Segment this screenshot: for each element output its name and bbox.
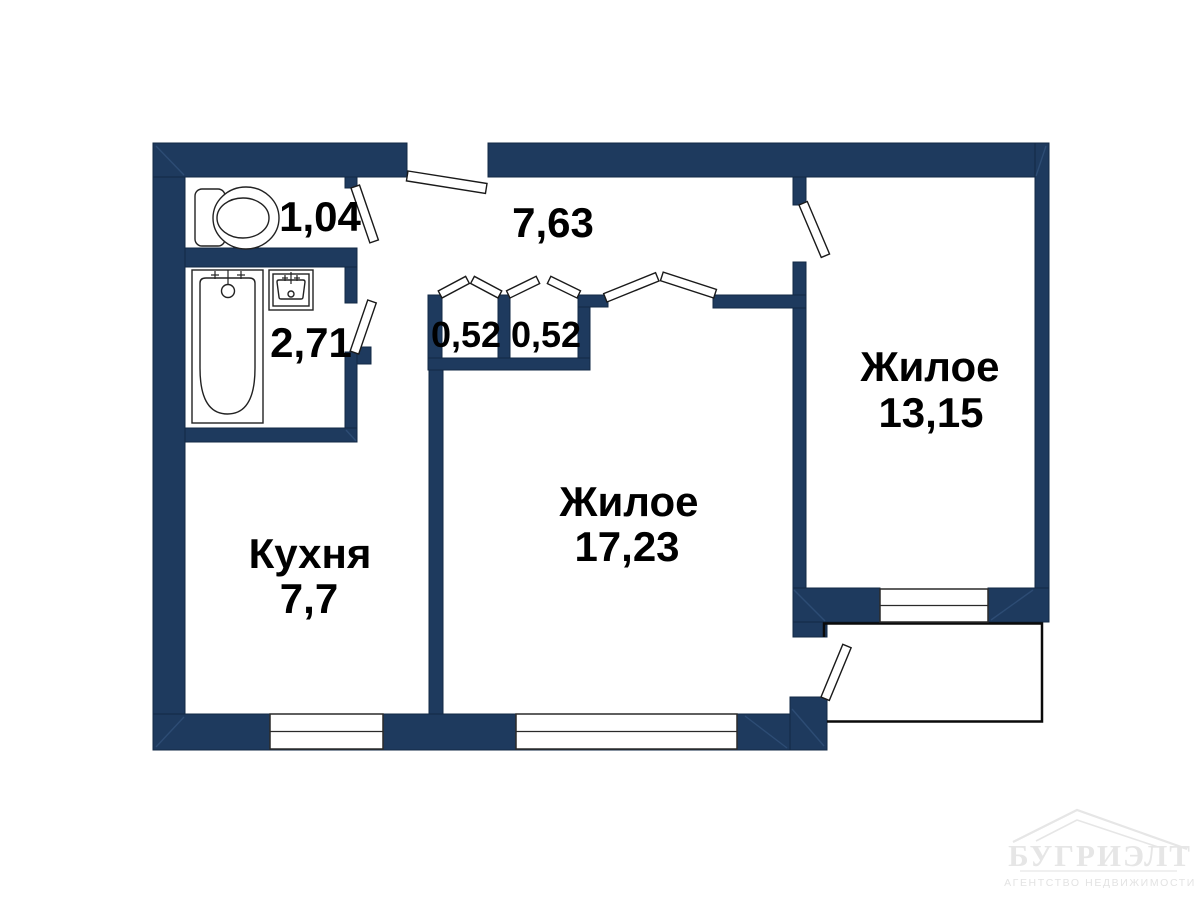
closet-left-door-leaf-b bbox=[471, 276, 502, 298]
toilet-area-label: 1,04 bbox=[279, 193, 361, 240]
windows bbox=[270, 589, 988, 749]
wall-bath-bottom bbox=[185, 428, 357, 442]
closet-right-area-label: 0,52 bbox=[511, 314, 581, 355]
wall-bedroom-left bbox=[793, 262, 806, 588]
living-name-label: Жилое bbox=[559, 478, 699, 525]
kitchen-name-label: Кухня bbox=[249, 530, 372, 577]
closet-left-area-label: 0,52 bbox=[431, 314, 501, 355]
agency-tagline-text: АГЕНТСТВО НЕДВИЖИМОСТИ bbox=[1004, 877, 1196, 889]
agency-brand-text: БУГРИЭЛТ bbox=[1008, 838, 1192, 873]
toilet-icon bbox=[195, 187, 279, 249]
wall-top-right bbox=[488, 143, 1049, 177]
bathtub-icon bbox=[192, 270, 263, 423]
bathroom-door-leaf bbox=[350, 300, 376, 354]
wall-toilet-bath-divider bbox=[185, 248, 357, 267]
living-area-label: 17,23 bbox=[574, 523, 679, 570]
agency-watermark: БУГРИЭЛТ АГЕНТСТВО НЕДВИЖИМОСТИ bbox=[1004, 810, 1196, 889]
hallway-area-label: 7,63 bbox=[512, 199, 594, 246]
living-door-leaf-a bbox=[604, 273, 659, 302]
doors bbox=[350, 171, 851, 700]
wall-left bbox=[153, 143, 185, 750]
living-door-leaf-b bbox=[660, 272, 716, 298]
sink-icon bbox=[269, 270, 313, 310]
wall-bedroom-left-stub bbox=[793, 177, 806, 205]
room-labels: 7,63 1,04 2,71 0,52 0,52 Кухня 7,7 Жилое… bbox=[249, 193, 1000, 622]
wall-top-left bbox=[153, 143, 407, 177]
closet-right-door-leaf-a bbox=[506, 276, 539, 298]
wall-bedroom-bottom-left bbox=[793, 588, 880, 622]
balcony-door-leaf bbox=[821, 644, 851, 700]
wall-closet-right-stub bbox=[578, 295, 608, 307]
wall-right bbox=[1035, 143, 1049, 622]
bathroom-area-label: 2,71 bbox=[270, 319, 352, 366]
bedroom-area-label: 13,15 bbox=[878, 389, 983, 436]
wall-bedroom-bottom-ext bbox=[793, 622, 827, 637]
bedroom-name-label: Жилое bbox=[860, 343, 1000, 390]
floor-plan: 7,63 1,04 2,71 0,52 0,52 Кухня 7,7 Жилое… bbox=[0, 0, 1200, 900]
closet-left-door-leaf-a bbox=[438, 276, 469, 298]
wall-closet-bottom bbox=[428, 358, 590, 370]
wall-bedroom-bottom-right bbox=[988, 588, 1049, 622]
entrance-door-leaf bbox=[406, 171, 487, 193]
kitchen-area-label: 7,7 bbox=[280, 575, 338, 622]
wall-kitchen-divider bbox=[429, 370, 443, 714]
bedroom-door-leaf bbox=[799, 201, 830, 257]
closet-right-door-leaf-b bbox=[547, 276, 580, 298]
balcony-outline bbox=[824, 624, 1042, 722]
floor-plan-canvas: 7,63 1,04 2,71 0,52 0,52 Кухня 7,7 Жилое… bbox=[0, 0, 1200, 900]
wall-hall-bottom-right bbox=[713, 295, 806, 308]
